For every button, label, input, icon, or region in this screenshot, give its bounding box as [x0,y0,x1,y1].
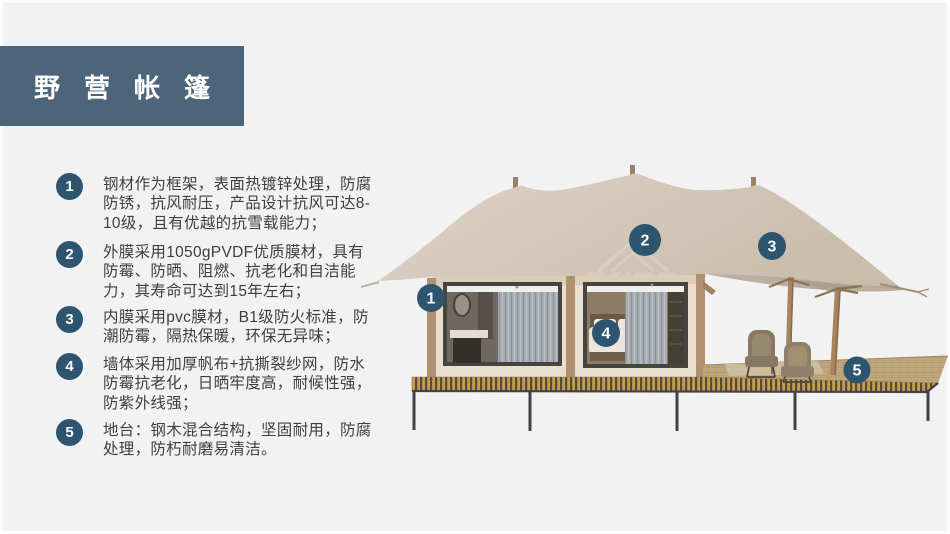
vanity [450,330,488,338]
feature-item-1: 1 钢材作为框架，表面热镀锌处理，防腐防锈，抗风耐压，产品设计抗风可达8-10级… [56,175,386,233]
svg-text:4: 4 [602,326,611,343]
feature-number-badge: 3 [56,306,83,333]
feature-text: 地台：钢木混合结构，坚固耐用，防腐处理，防朽耐磨易清洁。 [103,421,379,460]
page-title-bar: 野营帐篷 [0,46,244,126]
page-title: 野营帐篷 [0,68,234,105]
tent-diagram: 雪利篷居 [350,140,950,440]
marker-1: 1 [417,284,445,312]
marker-3: 3 [758,232,786,260]
mirror [454,294,470,316]
feature-number-badge: 5 [56,419,83,446]
curtain [625,292,667,364]
slide-background: 野营帐篷 1 钢材作为框架，表面热镀锌处理，防腐防锈，抗风耐压，产品设计抗风可达… [0,0,950,534]
window-bathroom [443,282,562,366]
marker-4: 4 [592,319,620,347]
feature-number-badge: 2 [56,241,83,268]
feature-text: 外膜采用1050gPVDF优质膜材，具有防霉、防晒、阻燃、抗老化和自洁能力，其寿… [103,243,379,301]
feature-item-5: 5 地台：钢木混合结构，坚固耐用，防腐处理，防朽耐磨易清洁。 [56,421,386,460]
feature-item-4: 4 墙体采用加厚帆布+抗撕裂纱网，防水防霉抗老化，日晒牢度高，耐候性强，防紫外线… [56,355,386,413]
feature-number-badge: 4 [56,353,83,380]
svg-text:1: 1 [427,291,436,308]
left-guy-rod [361,282,379,287]
feature-text: 钢材作为框架，表面热镀锌处理，防腐防锈，抗风耐压，产品设计抗风可达8-10级，且… [103,175,379,233]
marker-5: 5 [844,357,871,384]
feature-number-badge: 1 [56,173,83,200]
cabinet [453,338,481,363]
feature-item-3: 3 内膜采用pvc膜材，B1级防火标准，防潮防霉，隔热保暖，环保无异味； [56,308,386,347]
svg-text:5: 5 [853,363,862,380]
marker-2: 2 [629,224,661,256]
feature-text: 墙体采用加厚帆布+抗撕裂纱网，防水防霉抗老化，日晒牢度高，耐候性强，防紫外线强； [103,355,379,413]
feature-text: 内膜采用pvc膜材，B1级防火标准，防潮防霉，隔热保暖，环保无异味； [103,308,379,347]
feature-item-2: 2 外膜采用1050gPVDF优质膜材，具有防霉、防晒、阻燃、抗老化和自洁能力，… [56,243,386,301]
svg-text:2: 2 [641,233,650,250]
steel-legs [414,390,928,431]
svg-text:3: 3 [768,239,777,256]
curtain [498,292,558,362]
